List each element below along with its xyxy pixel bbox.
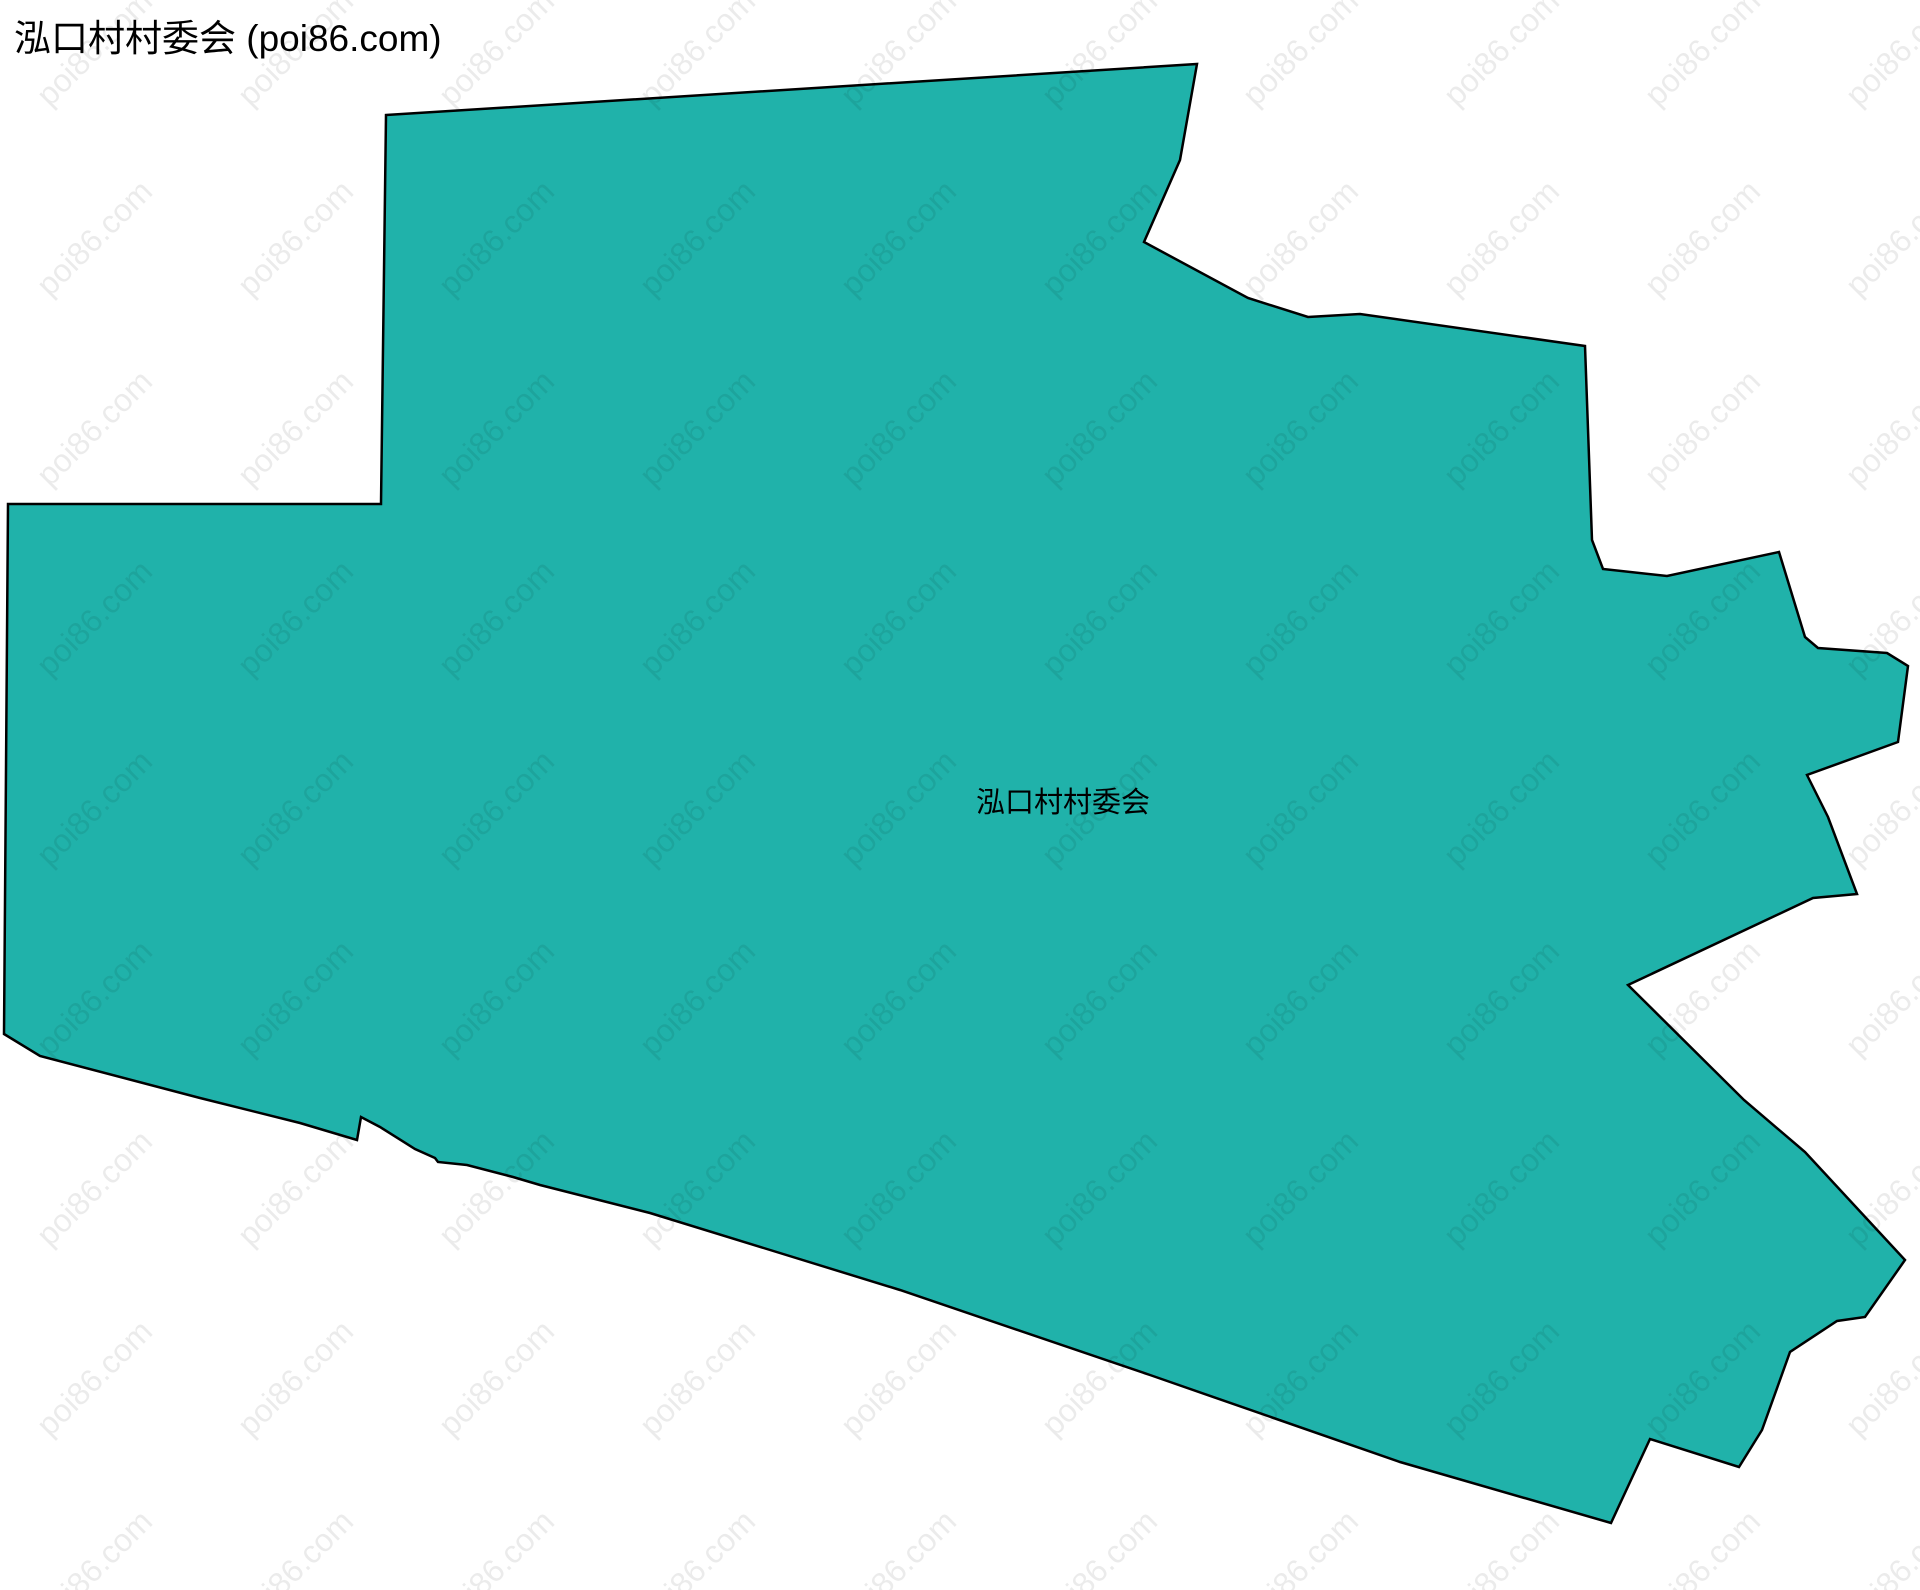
map-title: 泓口村村委会 (poi86.com)	[14, 8, 442, 62]
boundary-polygon	[4, 64, 1908, 1523]
map-canvas: poi86.compoi86.compoi86.compoi86.compoi8…	[0, 0, 1920, 1590]
boundary-map	[0, 0, 1920, 1590]
region-label: 泓口村村委会	[976, 779, 1150, 821]
